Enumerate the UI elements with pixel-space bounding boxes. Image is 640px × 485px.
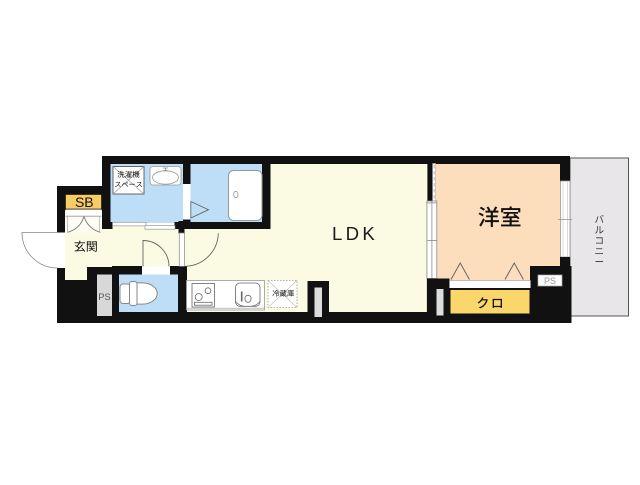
svg-text:SB: SB [75, 194, 94, 210]
svg-text:PS: PS [544, 276, 556, 286]
svg-text:PS: PS [98, 292, 110, 302]
svg-text:LDK: LDK [332, 223, 378, 244]
